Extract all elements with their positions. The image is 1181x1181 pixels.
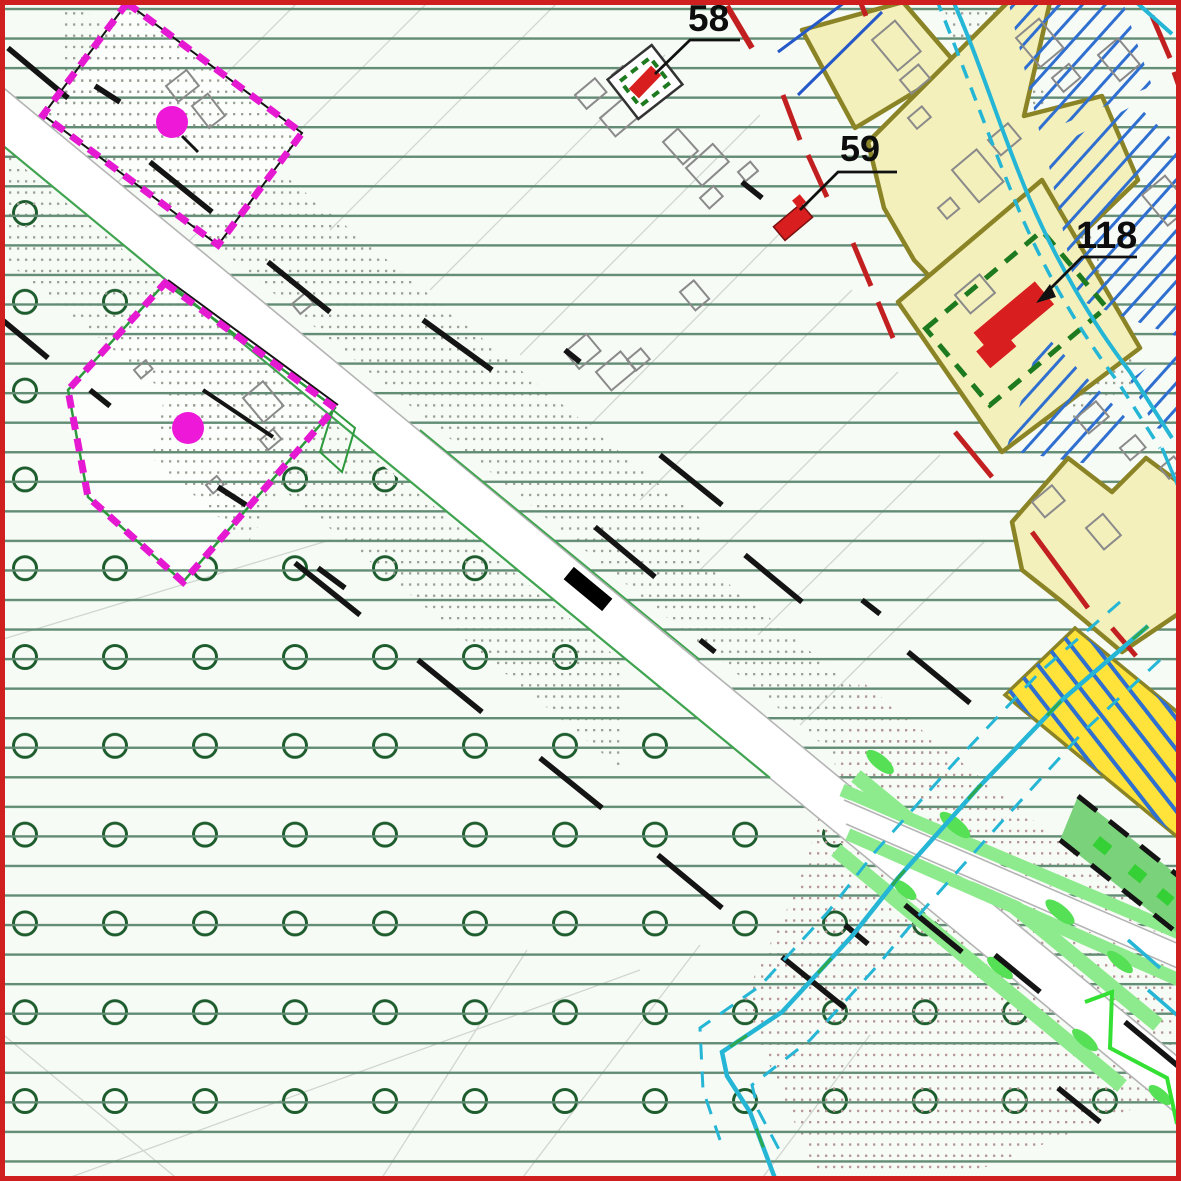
zoning-map: 58 59 118 [0,0,1181,1181]
label-118: 118 [1076,215,1137,257]
label-59: 59 [840,128,880,169]
magenta-dot-icon [156,106,188,138]
magenta-dot-icon [172,412,204,444]
map-canvas: 58 59 118 [0,0,1181,1181]
label-58: 58 [688,0,729,39]
